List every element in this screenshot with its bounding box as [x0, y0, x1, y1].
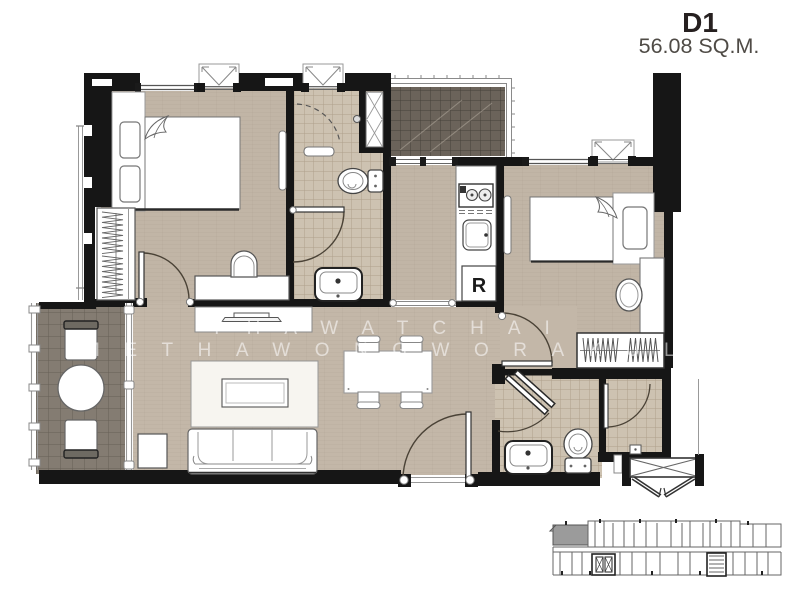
svg-text:METHAWONGWORAKUL: METHAWONGWORAKUL: [84, 340, 699, 361]
svg-text:THAWATCHAI: THAWATCHAI: [211, 318, 574, 339]
svg-text:56.08 SQ.M.: 56.08 SQ.M.: [639, 34, 760, 58]
svg-text:R: R: [472, 275, 487, 297]
